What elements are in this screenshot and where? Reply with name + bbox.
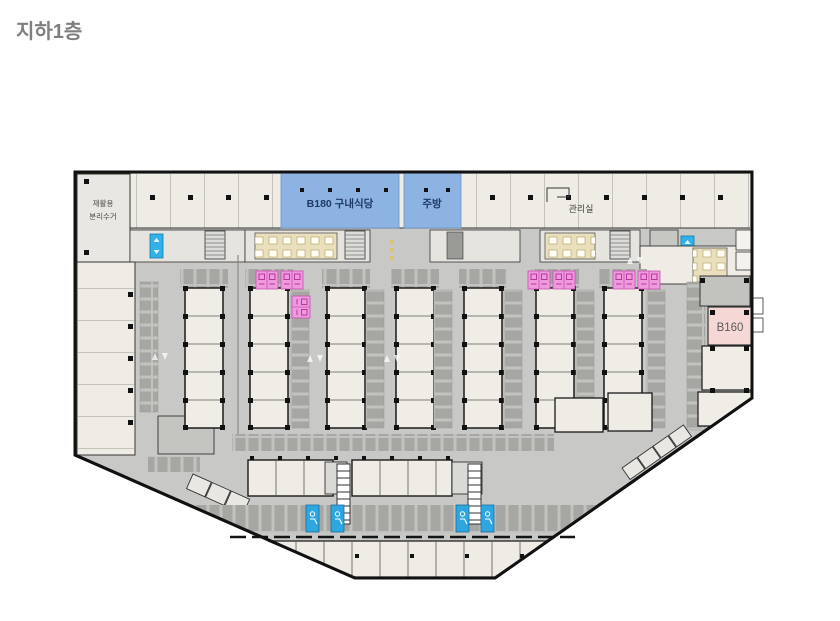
recycling-label-line1: 재활용 bbox=[93, 198, 114, 208]
stairwell bbox=[345, 231, 365, 259]
admin-office-label: 관리실 bbox=[569, 204, 594, 214]
right-room bbox=[702, 346, 752, 390]
kitchen-zone: 주방 bbox=[404, 172, 461, 228]
women-parking-spot bbox=[613, 271, 635, 289]
crosswalk bbox=[468, 464, 481, 524]
parking-stall-column bbox=[140, 282, 158, 412]
accessible-parking-spot bbox=[331, 505, 344, 532]
utility-room bbox=[447, 232, 463, 259]
kitchen-label: 주방 bbox=[422, 197, 442, 210]
women-parking-spot bbox=[292, 296, 310, 318]
storage-island bbox=[325, 286, 367, 430]
recycling-label-line2: 분리수거 bbox=[89, 212, 117, 221]
women-parking-spot bbox=[256, 271, 278, 289]
restroom-block bbox=[545, 233, 595, 259]
floorplan-canvas: 지하1층 재활용 분리수거 B180 구내식당 주방 관리실 bbox=[0, 0, 840, 621]
right-gray-room bbox=[700, 276, 750, 306]
accessible-parking-spot bbox=[306, 505, 319, 532]
cafeteria-label: B180 구내식당 bbox=[307, 197, 374, 210]
storage-island bbox=[248, 286, 290, 430]
accessible-parking-spot bbox=[456, 505, 469, 532]
restroom-block bbox=[255, 233, 337, 259]
recycling-room: 재활용 분리수거 bbox=[77, 174, 130, 262]
storage-island bbox=[462, 286, 504, 430]
women-parking-spot bbox=[281, 271, 303, 289]
women-parking-spot bbox=[553, 271, 575, 289]
women-parking-spot bbox=[528, 271, 550, 289]
storage-island bbox=[183, 286, 225, 430]
parking-stall-row bbox=[232, 434, 554, 451]
accessible-parking-spot bbox=[481, 505, 494, 532]
cafeteria-zone: B180 구내식당 bbox=[281, 172, 399, 228]
women-parking-spot bbox=[638, 271, 660, 289]
bollard-dots bbox=[390, 240, 394, 260]
unit-b160-label: B160 bbox=[717, 322, 744, 334]
elevator-marker bbox=[150, 234, 163, 258]
stairwell bbox=[205, 231, 225, 259]
storage-island bbox=[394, 286, 436, 430]
right-room bbox=[698, 392, 752, 426]
parking-stall-row-bottom bbox=[192, 505, 598, 533]
parking-stall-rows-top bbox=[180, 269, 647, 288]
floorplan-page: 지하1층 재활용 분리수거 B180 구내식당 주방 관리실 bbox=[0, 0, 840, 621]
page-title: 지하1층 bbox=[16, 20, 82, 43]
parking-stall-row bbox=[148, 456, 200, 472]
stairwell bbox=[610, 231, 630, 259]
